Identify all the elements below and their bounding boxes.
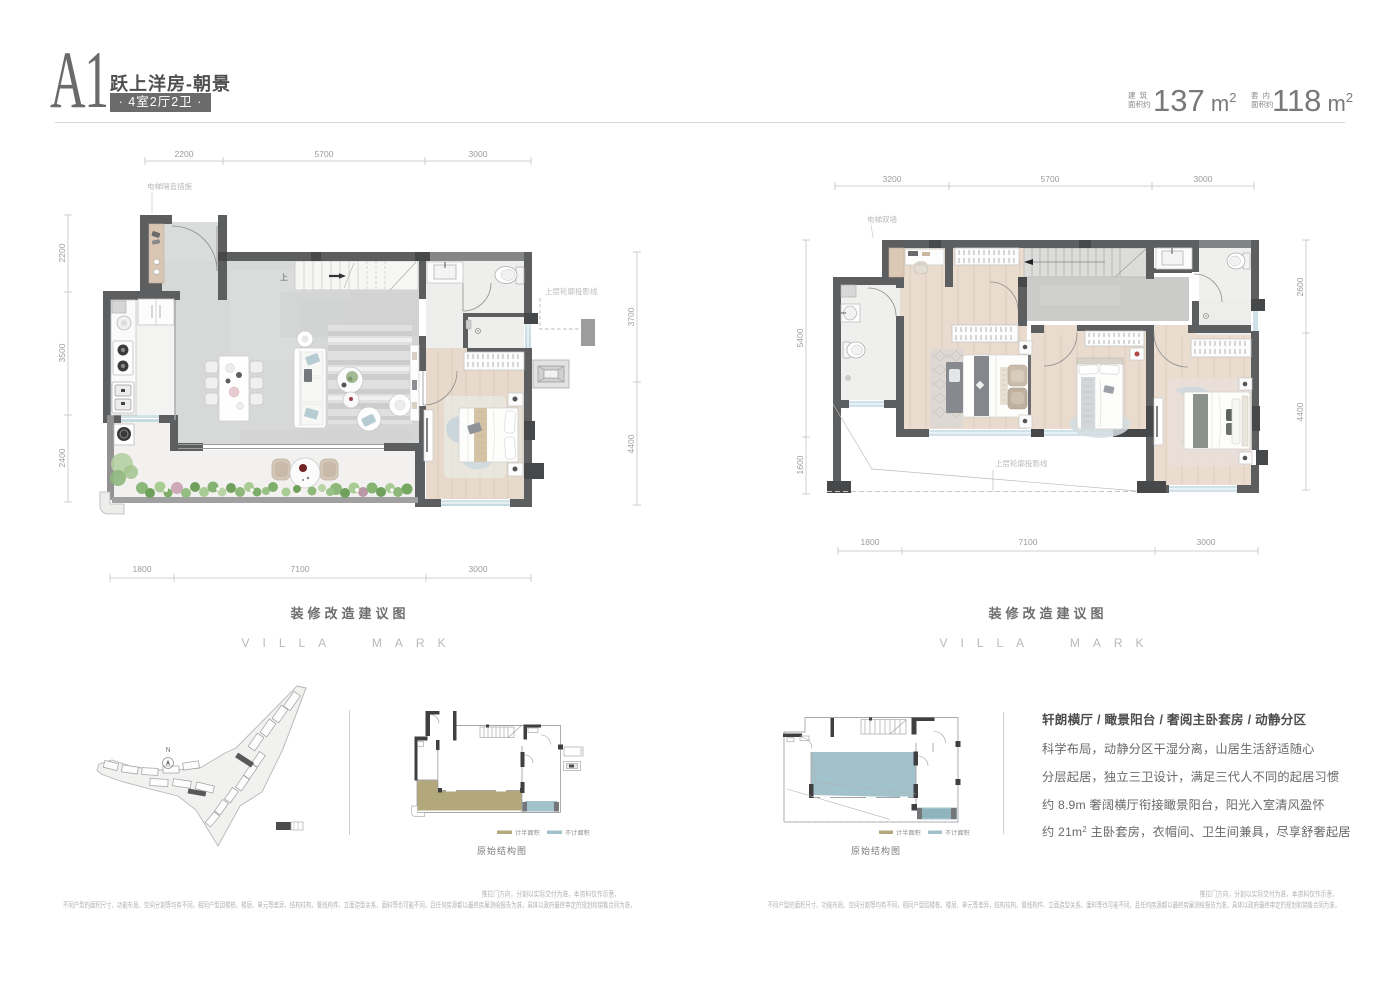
svg-text:3000: 3000 [1194,174,1213,184]
svg-text:2600: 2600 [1295,277,1305,296]
svg-text:电梯隔音措施: 电梯隔音措施 [147,181,192,191]
svg-text:3500: 3500 [57,343,67,362]
svg-text:上层轮廓投影线: 上层轮廓投影线 [995,458,1048,468]
svg-text:3200: 3200 [883,174,902,184]
svg-text:5400: 5400 [795,328,805,347]
svg-text:2200: 2200 [57,243,67,262]
svg-text:不计面积: 不计面积 [945,829,970,837]
svg-text:2400: 2400 [57,448,67,467]
svg-text:上: 上 [280,273,288,282]
svg-text:4400: 4400 [626,434,636,453]
svg-text:1800: 1800 [861,537,880,547]
svg-text:7100: 7100 [291,564,310,574]
svg-text:3000: 3000 [1197,537,1216,547]
svg-text:计半面积: 计半面积 [515,829,540,837]
svg-text:7100: 7100 [1019,537,1038,547]
svg-text:计半面积: 计半面积 [896,829,921,837]
svg-text:上层轮廓投影线: 上层轮廓投影线 [545,286,598,296]
svg-text:5700: 5700 [1041,174,1060,184]
svg-text:3000: 3000 [469,564,488,574]
svg-text:4400: 4400 [1295,402,1305,421]
svg-text:3000: 3000 [469,149,488,159]
svg-text:原始结构图: 原始结构图 [851,845,901,856]
svg-text:不计面积: 不计面积 [565,829,590,837]
svg-text:3700: 3700 [626,307,636,326]
svg-text:电梯双墙: 电梯双墙 [867,214,897,224]
svg-text:1600: 1600 [795,455,805,474]
svg-text:1800: 1800 [133,564,152,574]
svg-text:N: N [166,747,171,754]
svg-text:5700: 5700 [315,149,334,159]
svg-text:2200: 2200 [175,149,194,159]
svg-text:原始结构图: 原始结构图 [477,845,527,856]
